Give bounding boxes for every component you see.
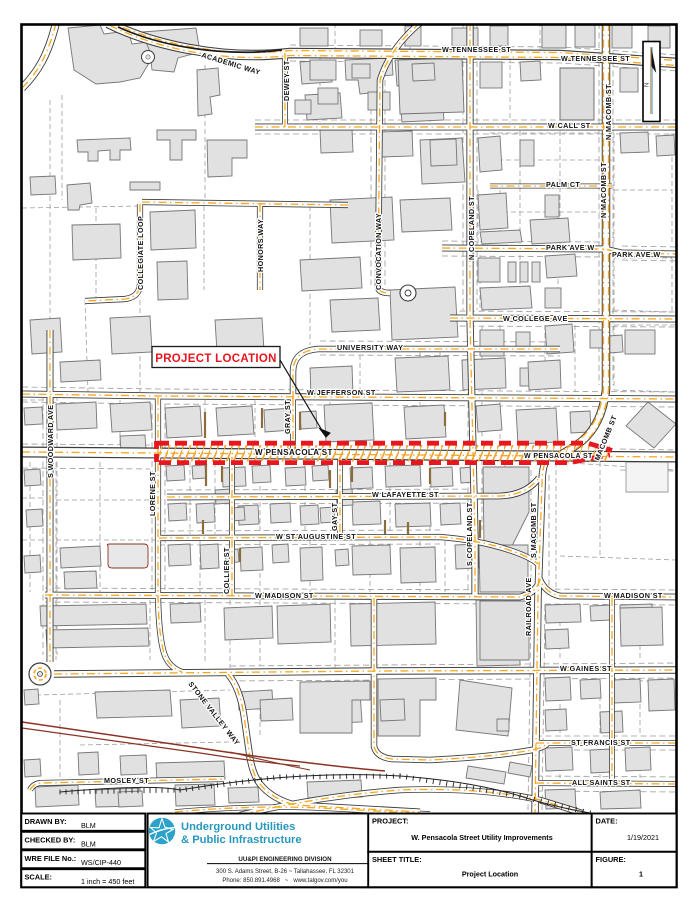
svg-text:W PENSACOLA ST: W PENSACOLA ST bbox=[255, 448, 333, 457]
svg-text:WRE FILE No.:: WRE FILE No.: bbox=[25, 854, 77, 863]
svg-text:GAY ST: GAY ST bbox=[330, 502, 339, 531]
svg-text:UNIVERSITY WAY: UNIVERSITY WAY bbox=[337, 343, 403, 352]
svg-text:N: N bbox=[644, 83, 651, 87]
svg-text:CONVOCATION WAY: CONVOCATION WAY bbox=[374, 213, 383, 290]
svg-text:PARK AVE W: PARK AVE W bbox=[546, 243, 595, 252]
svg-text:N COPELAND ST: N COPELAND ST bbox=[467, 196, 476, 260]
svg-text:W MADISON ST: W MADISON ST bbox=[255, 591, 314, 600]
svg-text:W ST AUGUSTINE ST: W ST AUGUSTINE ST bbox=[276, 532, 356, 541]
svg-text:HONORS WAY: HONORS WAY bbox=[256, 219, 265, 272]
svg-text:W JEFFERSON ST: W JEFFERSON ST bbox=[307, 388, 376, 397]
svg-text:1 inch = 450 feet: 1 inch = 450 feet bbox=[81, 877, 134, 886]
svg-text:S MACOMB ST: S MACOMB ST bbox=[529, 502, 538, 558]
svg-text:W. Pensacola Street Utility Im: W. Pensacola Street Utility Improvements bbox=[411, 833, 552, 842]
svg-text:N MACOMB ST: N MACOMB ST bbox=[599, 162, 608, 218]
svg-text:1/19/2021: 1/19/2021 bbox=[627, 833, 659, 842]
svg-text:UU&PI ENGINEERING DIVISION: UU&PI ENGINEERING DIVISION bbox=[238, 856, 332, 863]
svg-text:W MADISON ST: W MADISON ST bbox=[604, 591, 663, 600]
svg-text:DRAWN BY:: DRAWN BY: bbox=[25, 817, 67, 826]
svg-text:S WOODWARD AVE: S WOODWARD AVE bbox=[46, 405, 55, 478]
svg-text:W TENNESSEE ST: W TENNESSEE ST bbox=[442, 45, 511, 54]
svg-text:W TENNESSEE ST: W TENNESSEE ST bbox=[561, 54, 630, 63]
svg-text:MOSLEY ST: MOSLEY ST bbox=[104, 776, 149, 785]
svg-text:FIGURE:: FIGURE: bbox=[596, 855, 626, 864]
svg-text:COLLEGIATE LOOP: COLLEGIATE LOOP bbox=[136, 216, 145, 290]
svg-text:W PENSACOLA ST: W PENSACOLA ST bbox=[524, 453, 593, 460]
svg-text:W CALL ST: W CALL ST bbox=[548, 121, 591, 130]
svg-text:Project Location: Project Location bbox=[462, 870, 518, 879]
svg-text:BLM: BLM bbox=[81, 839, 96, 848]
svg-text:W COLLEGE AVE: W COLLEGE AVE bbox=[503, 314, 568, 323]
svg-text:COLLIER ST: COLLIER ST bbox=[222, 547, 231, 594]
svg-text:W GAINES ST: W GAINES ST bbox=[560, 664, 612, 673]
svg-text:N MACOMB ST: N MACOMB ST bbox=[604, 84, 613, 140]
svg-text:S COPELAND ST: S COPELAND ST bbox=[465, 502, 474, 566]
svg-text:Underground Utilities: Underground Utilities bbox=[181, 821, 295, 833]
svg-text:PALM CT: PALM CT bbox=[546, 180, 580, 189]
svg-text:DATE:: DATE: bbox=[596, 817, 618, 826]
svg-text:1: 1 bbox=[639, 870, 643, 879]
svg-text:GRAY ST: GRAY ST bbox=[283, 400, 292, 434]
svg-text:SCALE:: SCALE: bbox=[25, 873, 53, 882]
svg-text:PROJECT:: PROJECT: bbox=[372, 817, 409, 826]
svg-text:WS/CIP-440: WS/CIP-440 bbox=[81, 858, 121, 867]
svg-text:PARK AVE W: PARK AVE W bbox=[612, 250, 661, 259]
svg-text:ST FRANCIS ST: ST FRANCIS ST bbox=[571, 738, 631, 747]
svg-text:W LAFAYETTE ST: W LAFAYETTE ST bbox=[372, 490, 439, 499]
svg-text:DEWEY ST: DEWEY ST bbox=[282, 60, 291, 101]
svg-text:300 S. Adams Street, B-26 ~ Ta: 300 S. Adams Street, B-26 ~ Tallahassee,… bbox=[216, 869, 355, 875]
svg-text:ALL SAINTS ST: ALL SAINTS ST bbox=[572, 778, 631, 787]
svg-text:LORENE ST: LORENE ST bbox=[148, 471, 157, 516]
svg-text:CHECKED BY:: CHECKED BY: bbox=[25, 835, 76, 844]
svg-text:RAILROAD AVE: RAILROAD AVE bbox=[524, 577, 533, 636]
svg-text:Phone: 850.891.4968 ~ www.: Phone: 850.891.4968 ~ www.talgov.com/you bbox=[222, 878, 347, 884]
svg-text:SHEET TITLE:: SHEET TITLE: bbox=[372, 855, 422, 864]
svg-text:& Public Infrastructure: & Public Infrastructure bbox=[181, 834, 302, 846]
svg-text:PROJECT LOCATION: PROJECT LOCATION bbox=[155, 353, 277, 365]
svg-text:BLM: BLM bbox=[81, 821, 96, 830]
